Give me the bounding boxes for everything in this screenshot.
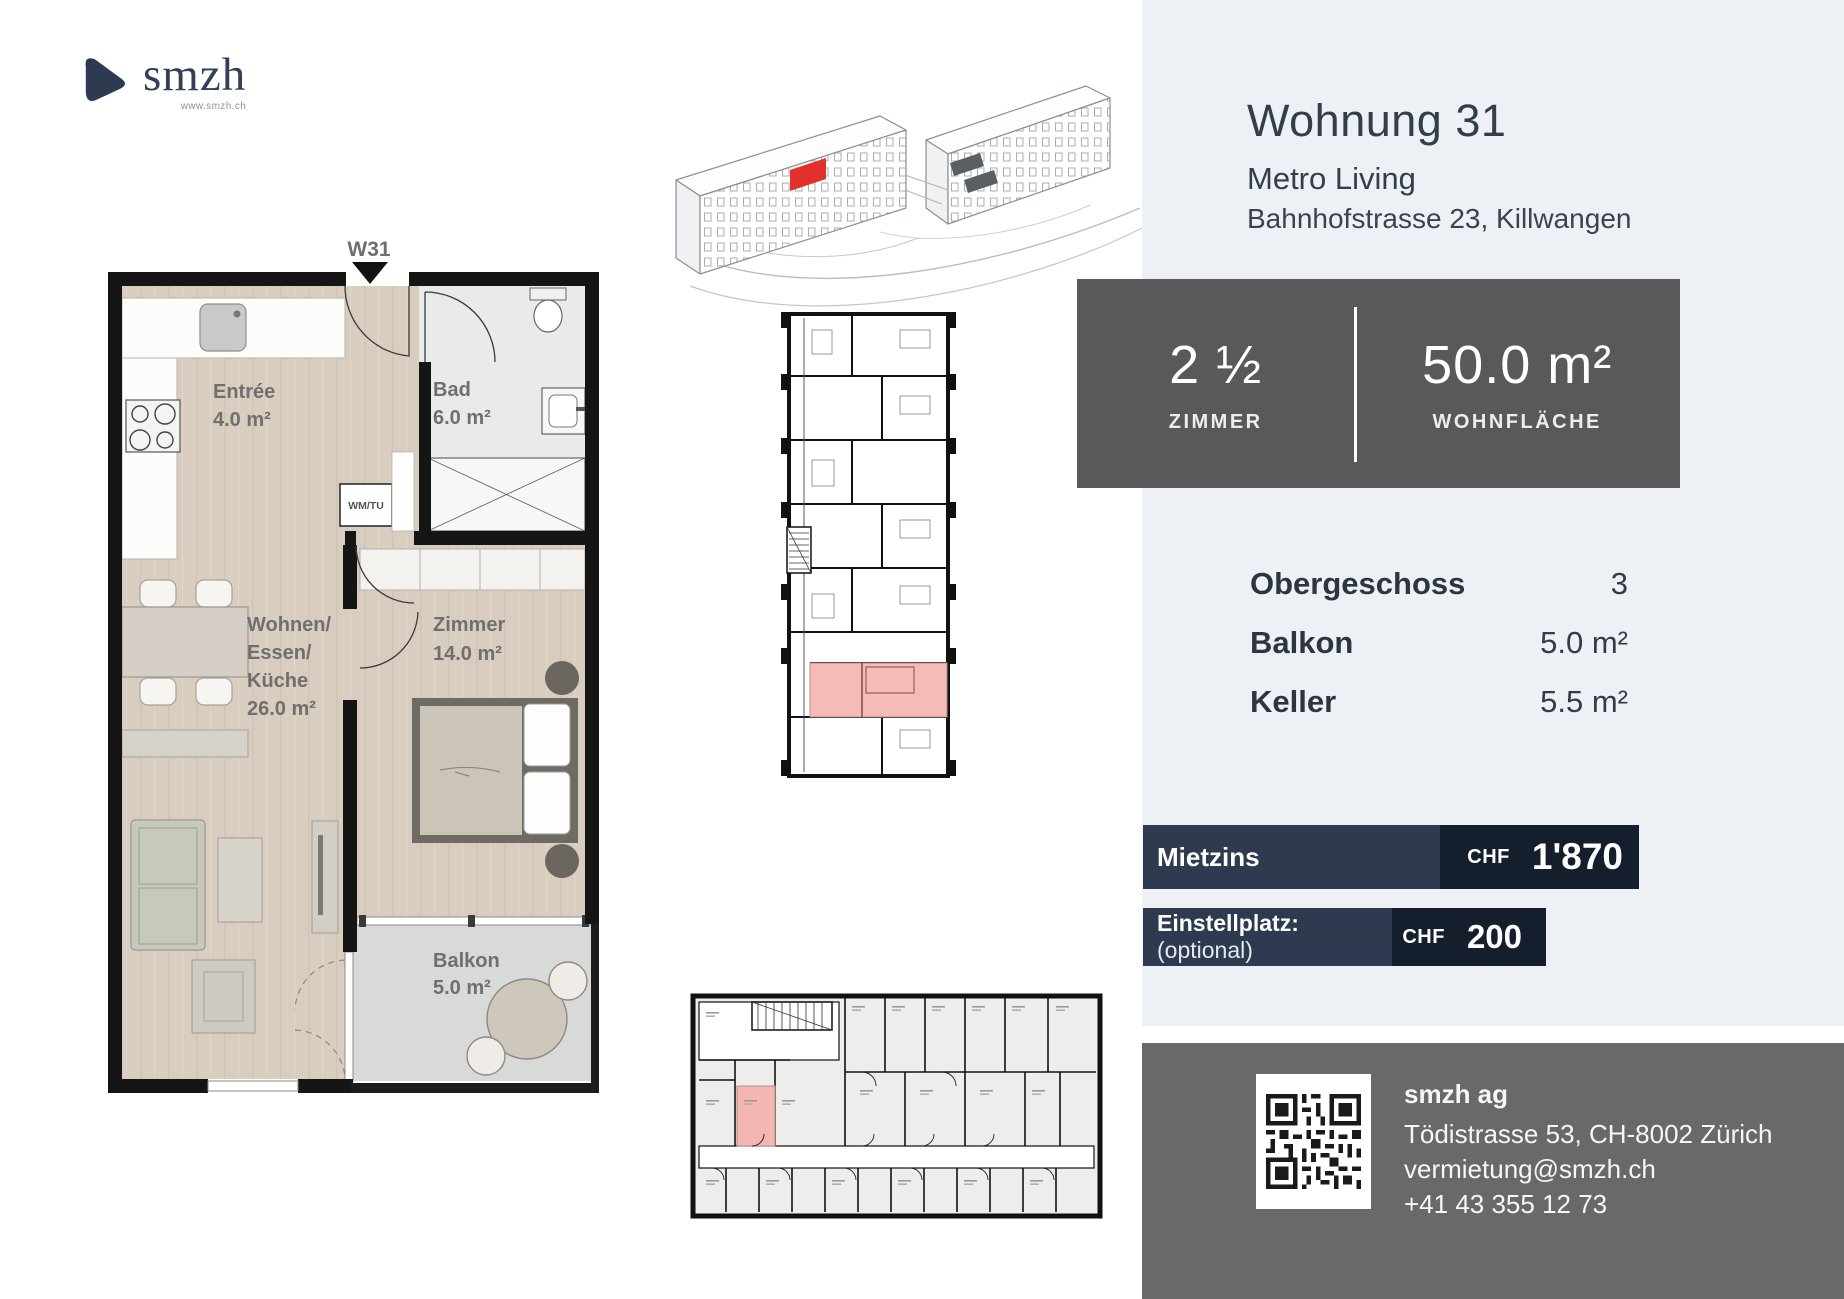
- bad-label: Bad: [433, 379, 471, 401]
- rent-value: 1'870: [1532, 836, 1623, 878]
- parking-value: 200: [1467, 918, 1522, 956]
- entree-area: 4.0 m²: [213, 409, 271, 431]
- project-name: Metro Living: [1247, 159, 1631, 199]
- factsheet-page: Entrée 4.0 m² Bad 6.0 m² WM/TU Wohnen/ E…: [0, 0, 1844, 1299]
- zimmer-label: Zimmer: [433, 614, 505, 636]
- area-label: WOHNFLÄCHE: [1432, 411, 1601, 434]
- rent-label: Mietzins: [1157, 842, 1260, 873]
- living-area: 26.0 m²: [247, 698, 316, 720]
- brand-logo-icon: [75, 52, 129, 106]
- basement-plan: [693, 996, 1100, 1216]
- rent-value-section: CHF 1'870: [1440, 825, 1639, 889]
- detail-label: Keller: [1250, 684, 1336, 720]
- site-sketch: [676, 86, 1142, 306]
- contact-company: smzh ag: [1404, 1077, 1772, 1111]
- living-label-1: Wohnen/: [247, 614, 332, 636]
- balkon-area: 5.0 m²: [433, 977, 491, 999]
- parking-optional: (optional): [1157, 937, 1253, 963]
- parking-value-section: CHF 200: [1392, 908, 1546, 966]
- rooms-label: ZIMMER: [1169, 411, 1263, 434]
- unit-header: Wohnung 31 Metro Living Bahnhofstrasse 2…: [1247, 96, 1631, 236]
- details-list: Obergeschoss 3 Balkon 5.0 m² Keller 5.5 …: [1250, 566, 1628, 743]
- upper-floor-plan: [781, 312, 956, 776]
- contact-email: vermietung@smzh.ch: [1404, 1152, 1772, 1187]
- detail-value: 5.0 m²: [1540, 625, 1628, 661]
- zimmer-area: 14.0 m²: [433, 643, 502, 665]
- bad-area: 6.0 m²: [433, 407, 491, 429]
- contact-footer: smzh ag Tödistrasse 53, CH-8002 Zürich v…: [1142, 1043, 1844, 1299]
- contact-address: Tödistrasse 53, CH-8002 Zürich: [1404, 1117, 1772, 1152]
- detail-label: Balkon: [1250, 625, 1353, 661]
- detail-label: Obergeschoss: [1250, 566, 1465, 602]
- brand-logo: smzh www.smzh.ch: [75, 52, 246, 112]
- entree-label: Entrée: [213, 381, 275, 403]
- contact-phone: +41 43 355 12 73: [1404, 1187, 1772, 1222]
- parking-currency: CHF: [1402, 926, 1445, 949]
- highlighted-unit-pink: [810, 663, 947, 717]
- rent-label-section: Mietzins: [1143, 825, 1440, 889]
- wm-label: WM/TU: [348, 500, 384, 512]
- unit-marker-label: W31: [347, 238, 391, 261]
- stats-box: 2 ½ ZIMMER 50.0 m² WOHNFLÄCHE: [1077, 279, 1680, 488]
- rooms-value: 2 ½: [1169, 334, 1262, 396]
- brand-name: smzh: [143, 52, 246, 99]
- rent-bar: Mietzins CHF 1'870: [1143, 825, 1639, 889]
- highlighted-keller-pink: [737, 1086, 775, 1146]
- brand-website: www.smzh.ch: [181, 101, 247, 112]
- living-label-3: Küche: [247, 670, 308, 692]
- page-title: Wohnung 31: [1247, 96, 1631, 146]
- main-floor-plan: Entrée 4.0 m² Bad 6.0 m² WM/TU Wohnen/ E…: [108, 238, 599, 1093]
- qr-code-icon: [1266, 1094, 1361, 1189]
- detail-row-balkon: Balkon 5.0 m²: [1250, 625, 1628, 684]
- qr-code: [1256, 1074, 1371, 1209]
- detail-value: 3: [1611, 566, 1628, 602]
- balkon-label: Balkon: [433, 950, 500, 972]
- parking-label: Einstellplatz:(optional): [1157, 910, 1392, 964]
- stats-divider: [1354, 307, 1357, 462]
- parking-label-section: Einstellplatz:(optional): [1143, 908, 1392, 966]
- project-address: Bahnhofstrasse 23, Killwangen: [1247, 202, 1631, 236]
- rent-currency: CHF: [1467, 846, 1510, 869]
- living-label-2: Essen/: [247, 642, 312, 664]
- area-value: 50.0 m²: [1422, 334, 1612, 396]
- unit-marker-arrow-icon: [352, 262, 388, 284]
- stats-area: 50.0 m² WOHNFLÄCHE: [1354, 279, 1680, 488]
- parking-bar: Einstellplatz:(optional) CHF 200: [1143, 908, 1546, 966]
- detail-row-obergeschoss: Obergeschoss 3: [1250, 566, 1628, 625]
- detail-row-keller: Keller 5.5 m²: [1250, 684, 1628, 743]
- stats-rooms: 2 ½ ZIMMER: [1077, 279, 1354, 488]
- detail-value: 5.5 m²: [1540, 684, 1628, 720]
- contact-block: smzh ag Tödistrasse 53, CH-8002 Zürich v…: [1404, 1077, 1772, 1222]
